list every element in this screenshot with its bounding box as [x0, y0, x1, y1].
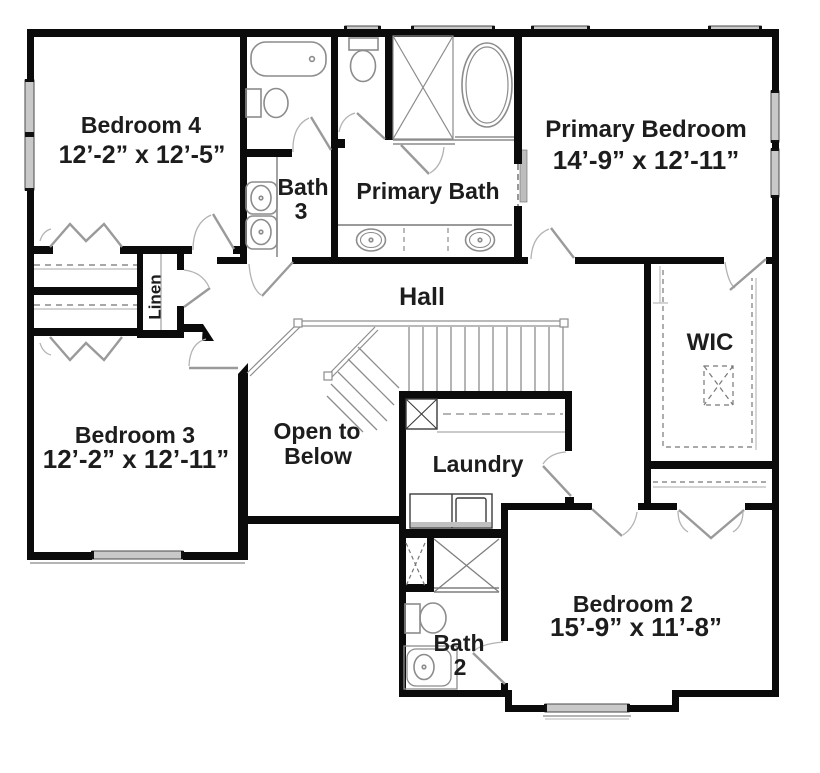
svg-text:Primary Bedroom: Primary Bedroom: [545, 116, 746, 143]
svg-text:Bath: Bath: [433, 630, 484, 656]
svg-text:Bath: Bath: [277, 174, 328, 200]
svg-text:Hall: Hall: [399, 283, 445, 311]
svg-text:12’-2” x 12’-11”: 12’-2” x 12’-11”: [43, 444, 229, 474]
svg-text:Primary Bath: Primary Bath: [356, 178, 499, 204]
svg-text:Below: Below: [284, 443, 352, 469]
svg-text:Bedroom 4: Bedroom 4: [81, 112, 201, 138]
svg-text:Linen: Linen: [145, 274, 164, 319]
svg-text:12’-2” x 12’-5”: 12’-2” x 12’-5”: [59, 141, 226, 169]
svg-text:15’-9” x 11’-8”: 15’-9” x 11’-8”: [550, 612, 722, 642]
svg-text:2: 2: [454, 654, 467, 680]
svg-text:14’-9” x 12’-11”: 14’-9” x 12’-11”: [553, 145, 739, 175]
svg-text:WIC: WIC: [687, 329, 734, 356]
svg-text:3: 3: [295, 198, 308, 224]
svg-text:Open to: Open to: [274, 418, 361, 444]
svg-text:Laundry: Laundry: [433, 451, 524, 477]
